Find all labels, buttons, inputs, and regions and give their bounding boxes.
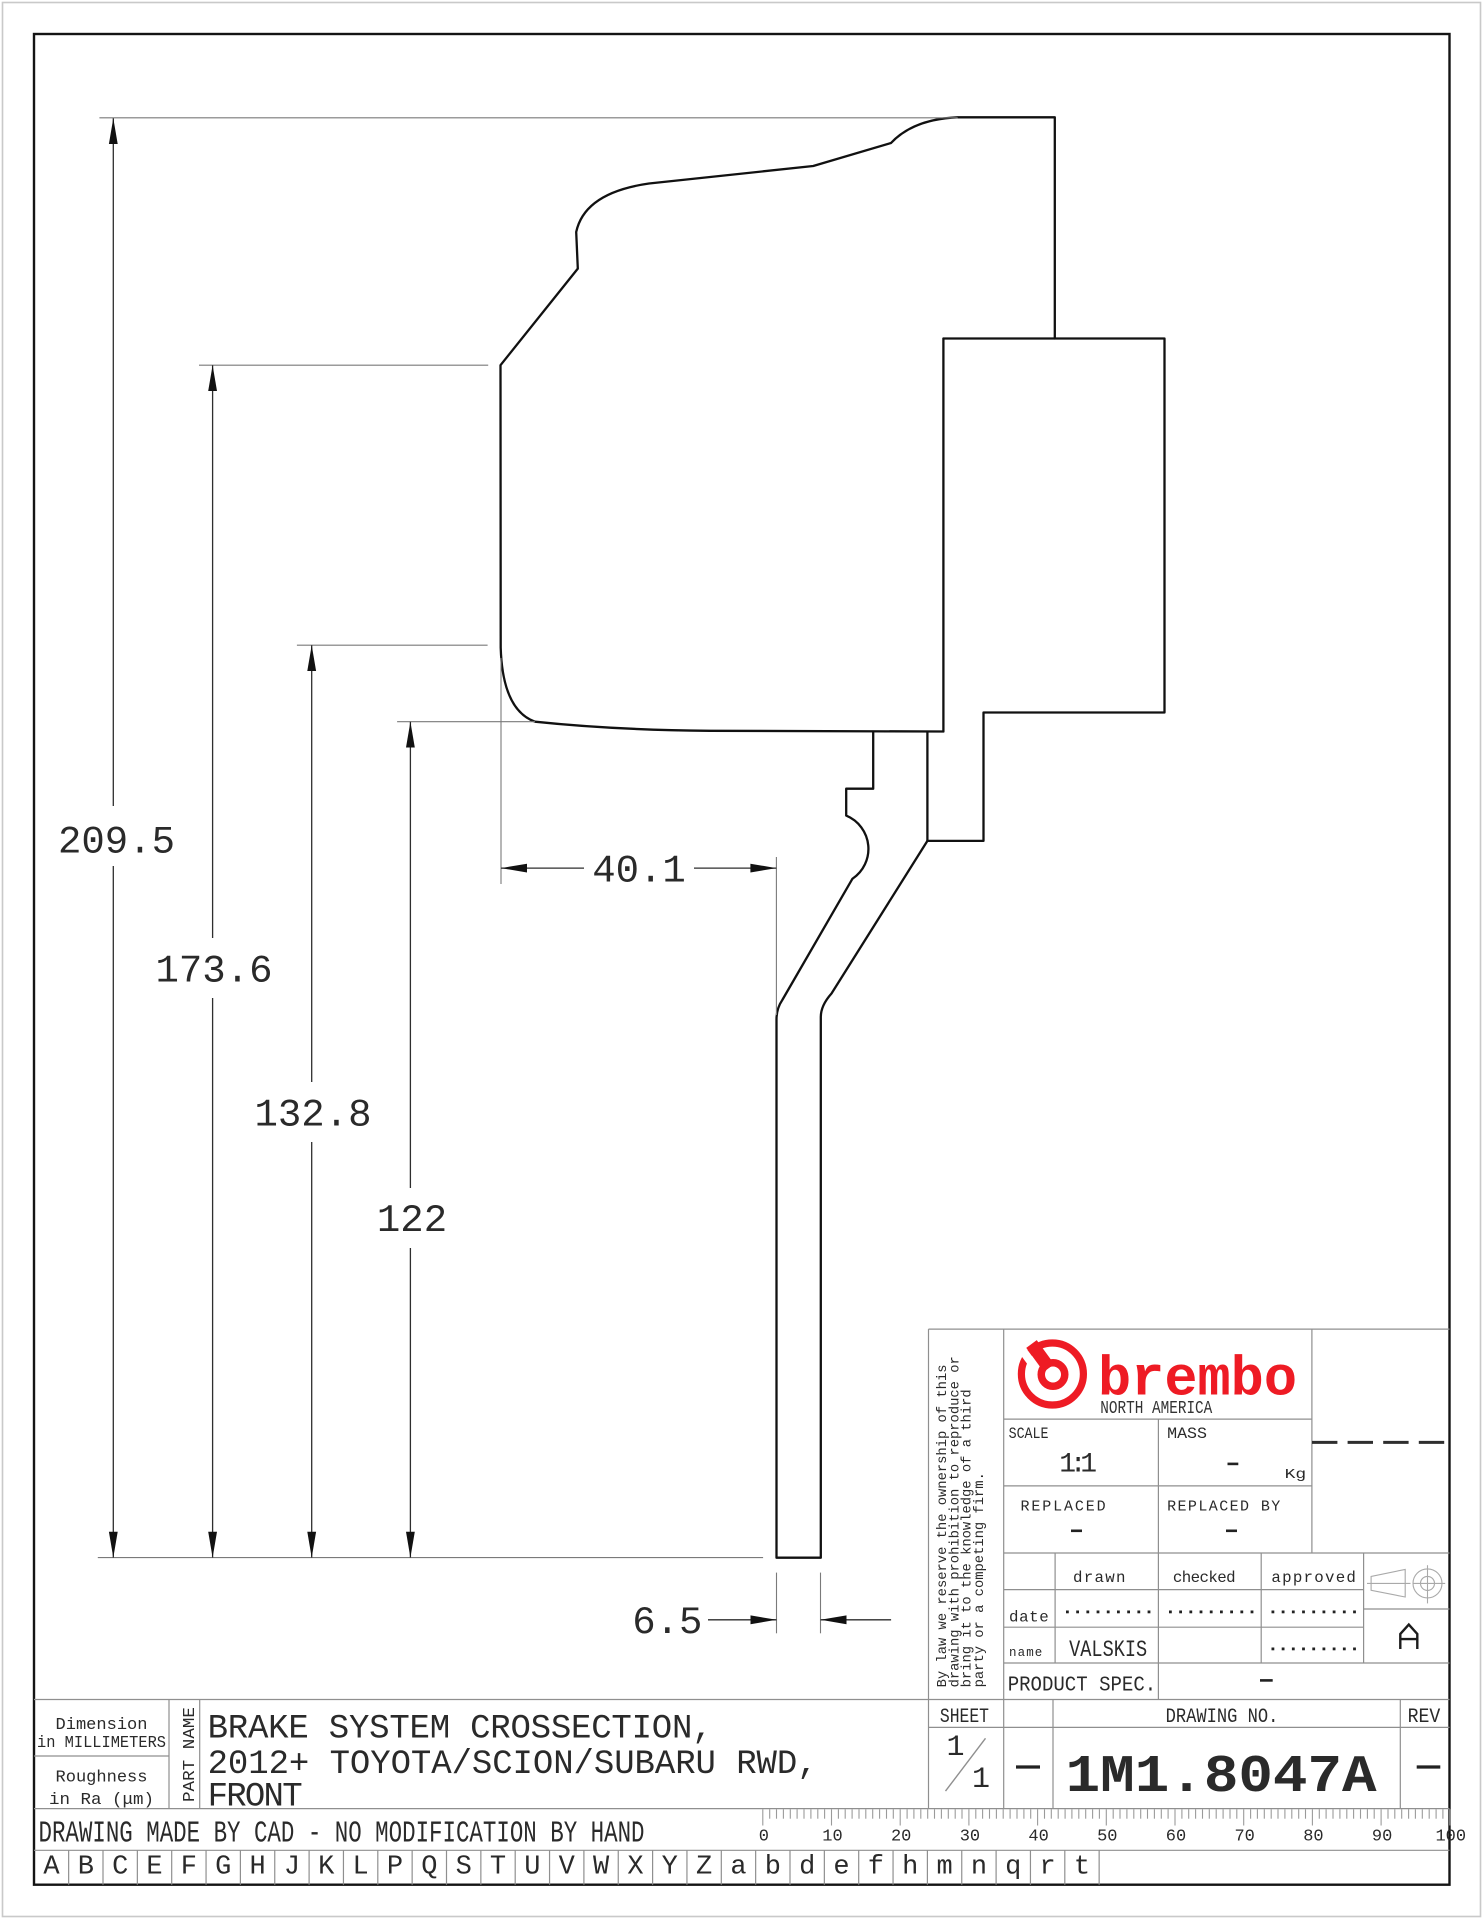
svg-text:1:1: 1:1 [1059, 1450, 1097, 1481]
svg-text:m: m [936, 1853, 952, 1883]
svg-text:T: T [490, 1853, 506, 1883]
svg-text:E: E [146, 1853, 162, 1883]
svg-text:r: r [1040, 1853, 1056, 1883]
svg-text:b: b [765, 1853, 781, 1883]
svg-text:VALSKIS: VALSKIS [1069, 1637, 1147, 1663]
svg-text:name: name [1009, 1646, 1042, 1660]
svg-text:90: 90 [1372, 1828, 1392, 1847]
svg-text:checked: checked [1173, 1569, 1236, 1587]
svg-text:MASS: MASS [1167, 1425, 1207, 1443]
svg-text:d: d [799, 1853, 815, 1883]
svg-text:W: W [593, 1853, 610, 1883]
svg-text:REV: REV [1408, 1705, 1441, 1728]
svg-text:X: X [627, 1853, 643, 1883]
svg-text:REPLACED: REPLACED [1021, 1498, 1106, 1515]
svg-text:q: q [1005, 1853, 1021, 1883]
svg-text:80: 80 [1303, 1828, 1323, 1847]
svg-text:V: V [559, 1853, 576, 1883]
svg-text:C: C [112, 1853, 128, 1883]
svg-text:SHEET: SHEET [940, 1705, 989, 1728]
svg-text:100: 100 [1435, 1828, 1466, 1847]
svg-text:209.5: 209.5 [58, 821, 175, 865]
svg-text:n: n [971, 1853, 987, 1883]
svg-text:date: date [1009, 1609, 1049, 1627]
svg-text:J: J [284, 1853, 300, 1883]
svg-text:SCALE: SCALE [1009, 1425, 1049, 1443]
svg-text:1: 1 [972, 1763, 990, 1797]
svg-text:B: B [78, 1853, 94, 1883]
svg-text:Z: Z [696, 1853, 712, 1883]
svg-text:173.6: 173.6 [155, 950, 272, 994]
svg-text:6.5: 6.5 [632, 1601, 702, 1645]
svg-text:K: K [318, 1853, 335, 1883]
svg-text:1M1.8047A: 1M1.8047A [1066, 1747, 1377, 1807]
svg-text:L: L [353, 1853, 369, 1883]
svg-text:Dimension: Dimension [56, 1715, 148, 1734]
svg-text:e: e [833, 1853, 849, 1883]
svg-text:PART NAME: PART NAME [180, 1707, 199, 1802]
svg-text:Roughness: Roughness [56, 1768, 148, 1787]
svg-text:G: G [215, 1853, 231, 1883]
svg-text:FRONT: FRONT [208, 1779, 303, 1817]
svg-text:A: A [43, 1853, 60, 1883]
svg-text:PRODUCT SPEC.: PRODUCT SPEC. [1008, 1675, 1156, 1698]
svg-text:approved: approved [1271, 1569, 1356, 1587]
svg-text:20: 20 [891, 1828, 911, 1847]
svg-text:U: U [524, 1853, 540, 1883]
svg-text:F: F [181, 1853, 197, 1883]
svg-text:drawn: drawn [1073, 1569, 1126, 1587]
svg-text:1: 1 [946, 1731, 964, 1765]
svg-text:Q: Q [421, 1853, 437, 1883]
svg-text:S: S [456, 1853, 472, 1883]
svg-text:30: 30 [960, 1828, 980, 1847]
svg-text:in MILLIMETERS: in MILLIMETERS [37, 1733, 166, 1752]
svg-text:H: H [249, 1853, 265, 1883]
svg-text:40: 40 [1028, 1828, 1048, 1847]
svg-text:f: f [868, 1853, 884, 1883]
svg-text:70: 70 [1234, 1828, 1254, 1847]
svg-text:NORTH AMERICA: NORTH AMERICA [1100, 1399, 1212, 1419]
svg-text:DRAWING MADE BY CAD - NO MODIF: DRAWING MADE BY CAD - NO MODIFICATION BY… [39, 1817, 645, 1852]
svg-text:Kg: Kg [1285, 1467, 1307, 1483]
svg-text:party or a competing firm.: party or a competing firm. [972, 1472, 988, 1687]
svg-text:0: 0 [759, 1828, 769, 1847]
svg-text:P: P [387, 1853, 403, 1883]
svg-text:60: 60 [1166, 1828, 1186, 1847]
svg-text:BRAKE SYSTEM CROSSECTION,: BRAKE SYSTEM CROSSECTION, [208, 1711, 713, 1749]
svg-text:50: 50 [1097, 1828, 1117, 1847]
svg-text:h: h [902, 1853, 918, 1883]
svg-text:40.1: 40.1 [592, 850, 686, 894]
svg-text:t: t [1074, 1853, 1090, 1883]
svg-text:Y: Y [662, 1853, 678, 1883]
svg-text:DRAWING NO.: DRAWING NO. [1166, 1705, 1279, 1728]
svg-text:in Ra (μm): in Ra (μm) [49, 1790, 154, 1809]
svg-text:10: 10 [822, 1828, 842, 1847]
svg-text:122: 122 [377, 1199, 447, 1243]
svg-text:REPLACED BY: REPLACED BY [1167, 1498, 1280, 1515]
svg-text:132.8: 132.8 [254, 1094, 371, 1138]
svg-text:a: a [730, 1853, 746, 1883]
